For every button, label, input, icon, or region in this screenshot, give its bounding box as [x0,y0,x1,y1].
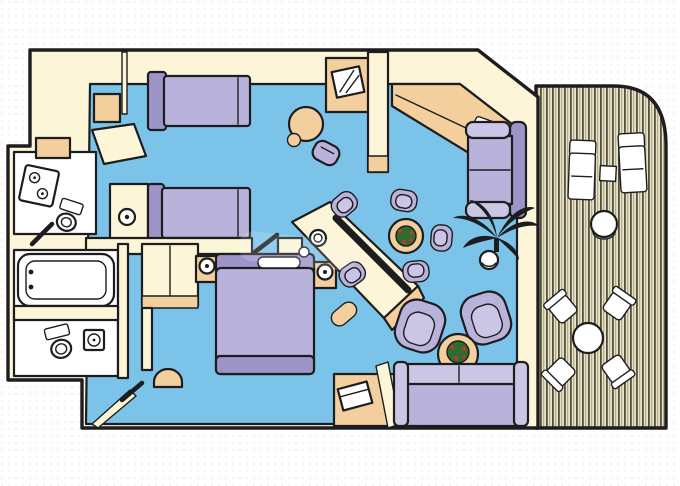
plant-centerpiece [396,226,416,246]
suite-floor-plan [0,0,680,486]
dining-chair [430,224,453,252]
closet-wall [142,308,152,370]
partition-stub [122,52,127,114]
floor-plan-canvas [0,0,680,486]
master-bedroom [196,254,336,374]
pouf [154,369,182,387]
divider-cap [368,156,388,172]
partition [14,306,118,320]
twin-bed-1 [148,72,250,130]
lower-bathroom [14,244,142,400]
twin-bed-2 [110,184,250,240]
queen-bed [216,254,314,374]
sink [19,165,60,207]
deck-table-lower [573,323,603,353]
dining-chair [402,260,430,283]
sun-lounger [568,140,596,200]
room-divider-wall [368,52,388,172]
shelf [36,138,70,158]
deck-table-upper [591,211,617,239]
sofa [394,362,528,426]
side-table [600,166,617,182]
tv-icon [332,66,365,97]
upper-bathroom [14,138,96,244]
sink [84,330,104,350]
sun-lounger [618,133,647,193]
plant-on-table [447,341,469,363]
bathroom-wall [118,244,128,378]
dresser [94,94,120,122]
table-foot [288,134,301,147]
bathtub [18,254,114,306]
